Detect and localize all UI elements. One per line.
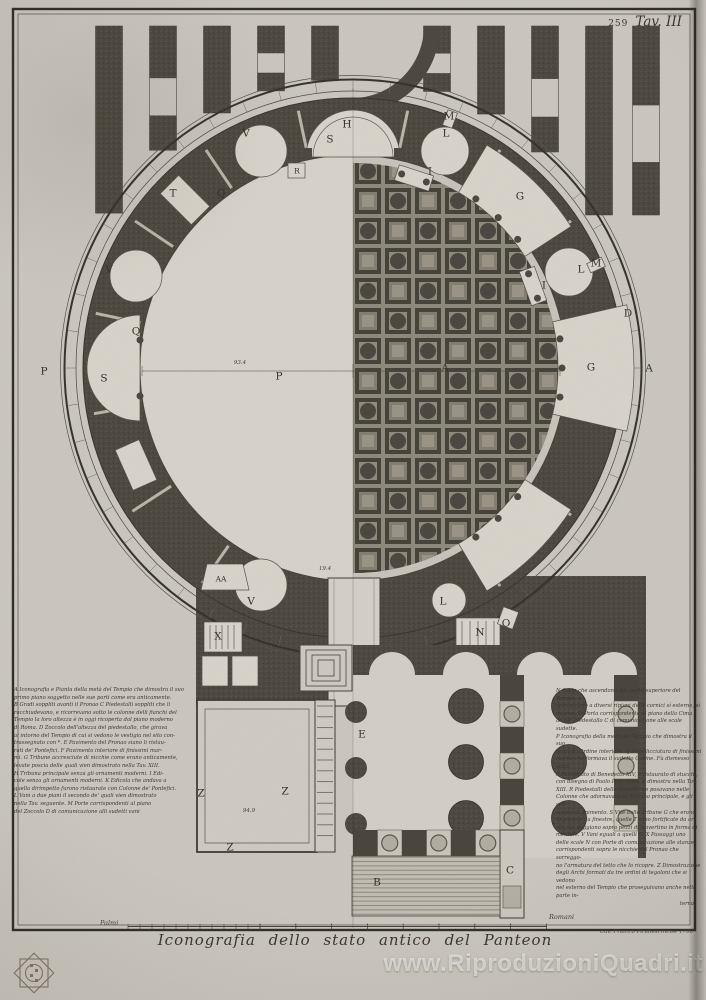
plate-title: Iconografia dello stato antico del Pante… <box>120 931 590 949</box>
legend-line: il Pontificato di Benedetto XIV, e rista… <box>556 772 702 780</box>
plate-tav-label: Tav. III <box>635 14 682 30</box>
legend-line: delle scale N con Porte di comunicazione… <box>556 840 702 848</box>
legend-line: con disegno di Paolo Posi, come si dimos… <box>556 779 702 787</box>
legend-line: Colonne che adornavano la Tribuna princi… <box>556 794 702 809</box>
legend-line: rati de' Pontefici. F Pavimento interior… <box>14 748 192 756</box>
legend-line: Tempio la loro altezza è in oggi ricoper… <box>14 717 192 725</box>
watermark-text: www.RiproduzioniQuadri.it <box>383 950 703 978</box>
legend-line: A Iconografia e Pianta della metà del Te… <box>14 687 192 695</box>
legend-line: degli Archi formati da tre ordini di teg… <box>556 870 702 885</box>
legend-line: illuminate da finestre, quelle T sono fo… <box>556 817 702 825</box>
legend-line: cole senza gli ornamenti moderni. K Edic… <box>14 778 192 786</box>
legend-line: corrispondenti sopra le nicchie del Pron… <box>556 847 702 862</box>
legend-line: chi che poggiano sopra pezzi di traverti… <box>556 825 702 833</box>
scale-label-palmi: Palmi <box>100 919 118 927</box>
legend-line: quella dirimpetto furono ristaurate con … <box>14 786 192 794</box>
legend-line: interne. O Porta corrispondente al piano… <box>556 711 702 719</box>
legend-line: al intorno del Tempio di cui si vedono l… <box>14 733 192 741</box>
legend-line: H Tribuna principale senza gli ornamenti… <box>14 771 192 779</box>
legend-line: N Scale che ascendono alla parte superio… <box>556 688 702 703</box>
legend-line: levate poscia delle quali vien dimostrat… <box>14 763 192 771</box>
legend-line: marmi che formava il sudetto Ordine. Fù … <box>556 756 702 771</box>
legend-line: primo piano soggetto nelle sue parti com… <box>14 695 192 703</box>
legend-line: di Roma. D Zoccolo dell'altezza del pied… <box>14 725 192 733</box>
collector-seal-icon <box>6 948 62 998</box>
legend-line: trassegnato con *. E Pavimento del Prona… <box>14 740 192 748</box>
legend-line: XIII. R Piedestalli delle Cornici che po… <box>556 787 702 795</box>
legend-right-column: N Scale che ascendono alla parte superio… <box>556 688 702 908</box>
scale-label-romani: Romani <box>549 913 574 921</box>
legend-line: L Vani a due piani il secondo de' quali … <box>14 793 192 801</box>
legend-line: mensole. V Vani eguali a quelli G. X Pas… <box>556 832 702 840</box>
legend-line: vivano di finimento. S Vite delle Tribun… <box>556 810 702 818</box>
legend-line: an del Piedestallo C di comunicazione al… <box>556 718 702 733</box>
plate-page-number: 259 <box>608 19 628 29</box>
legend-line: nella Tav. seguente. M Porte corrisponde… <box>14 801 192 809</box>
legend-line: mi. G Tribune accresciute di nicchie com… <box>14 755 192 763</box>
legend-line: del Zoccolo D di comunicazione alli sude… <box>14 809 192 817</box>
legend-left-column: A Iconografia e Pianta della metà del Te… <box>14 687 192 816</box>
engraver-credit: Cav. Fran.co Piranesi incise 1790 <box>600 929 693 935</box>
legend-line: comunicano a diversi ripiani delle corni… <box>556 703 702 711</box>
legend-line: B Gradi soppliti avanti il Pronao C Pied… <box>14 702 192 710</box>
legend-line: terna <box>556 901 702 909</box>
etching-plate: HSRVTQVQSPPMLIGMLIDGAAAAXVLNOEZZZBC 93.4… <box>0 0 706 1000</box>
plate-number: 259Tav. III <box>608 14 682 30</box>
legend-line: nel esterno del Tempio che proseguivano … <box>556 885 702 900</box>
legend-line: no l'armatura del tetto che lo ricopre. … <box>556 863 702 871</box>
legend-line: P Iconografia della metà del Tempio che … <box>556 734 702 749</box>
